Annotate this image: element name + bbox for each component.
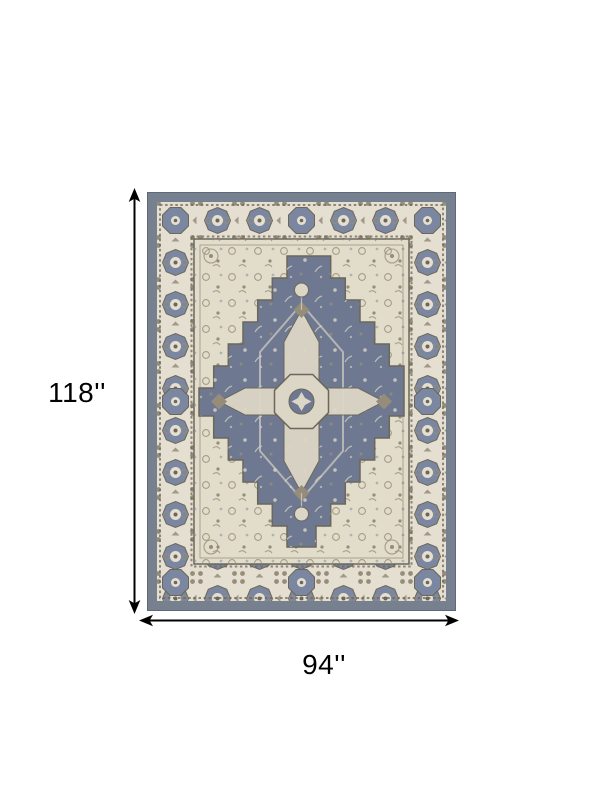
height-arrow <box>129 188 141 614</box>
arrow-left-icon <box>139 615 153 627</box>
width-arrow <box>139 615 459 627</box>
arrow-right-icon <box>445 615 459 627</box>
arrow-up-icon <box>129 188 141 202</box>
rug-illustration <box>147 192 456 611</box>
product-dimension-canvas: 118'' 94'' <box>0 0 600 807</box>
height-dimension-label: 118'' <box>37 377 117 409</box>
arrow-down-icon <box>129 600 141 614</box>
width-dimension-label: 94'' <box>284 649 364 681</box>
rug-product-image <box>147 192 456 611</box>
